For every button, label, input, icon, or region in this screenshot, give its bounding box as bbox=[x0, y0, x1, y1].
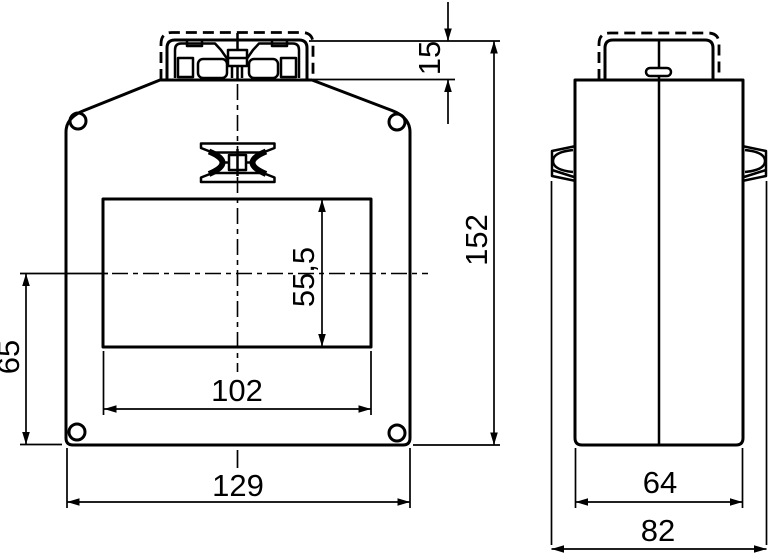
terminal-screw-small-right bbox=[281, 58, 296, 77]
arrowhead-left bbox=[576, 498, 589, 506]
arrowhead-left bbox=[104, 405, 117, 413]
arrowhead-right bbox=[398, 498, 411, 506]
dim-window-height: 55,5 bbox=[286, 200, 326, 347]
dimensions: 15 152 55,5 102 bbox=[0, 2, 767, 553]
dim-text-82: 82 bbox=[641, 513, 675, 548]
dim-text-129: 129 bbox=[212, 468, 264, 503]
mounting-hole-bottom-right bbox=[389, 425, 405, 441]
dim-text-64: 64 bbox=[643, 465, 677, 500]
dim-base-to-center: 65 bbox=[0, 274, 108, 445]
right-clip-spring-arc bbox=[745, 150, 765, 172]
arrowhead-up bbox=[444, 80, 452, 93]
cap-slot bbox=[646, 68, 671, 76]
arrowhead-up bbox=[490, 41, 498, 54]
dim-body-depth: 64 bbox=[576, 448, 743, 508]
dim-overall-width: 129 bbox=[67, 448, 410, 508]
dim-text-152: 152 bbox=[459, 214, 494, 266]
dim-text-102: 102 bbox=[211, 373, 263, 408]
arrowhead-right bbox=[730, 498, 743, 506]
arrowhead-down bbox=[22, 432, 30, 445]
mounting-hole-top-left bbox=[70, 113, 86, 129]
arrowhead-left bbox=[552, 545, 565, 553]
dim-text-65: 65 bbox=[0, 340, 26, 374]
dim-text-15: 15 bbox=[412, 41, 447, 75]
dim-overall-height: 152 bbox=[413, 41, 500, 445]
arrowhead-right bbox=[754, 545, 767, 553]
left-clip-spring-arc bbox=[553, 150, 573, 172]
arrowhead-down bbox=[490, 433, 498, 446]
dimension-drawing-canvas: 15 152 55,5 102 bbox=[0, 0, 770, 555]
bobbin-right-crescent bbox=[253, 152, 267, 175]
mounting-hole-bottom-left bbox=[69, 424, 85, 440]
dim-text-55-5: 55,5 bbox=[286, 247, 321, 307]
right-clip bbox=[742, 146, 766, 181]
terminal-screw-small-left bbox=[178, 58, 193, 77]
left-clip bbox=[552, 146, 576, 181]
arrowhead-down bbox=[318, 334, 326, 347]
drawing-sheet: 15 152 55,5 102 bbox=[0, 0, 770, 555]
bobbin-left-crescent bbox=[209, 152, 223, 175]
terminal-screw-right bbox=[249, 59, 278, 78]
terminal-screw-left bbox=[198, 59, 227, 78]
dim-window-width: 102 bbox=[104, 351, 372, 415]
dim-terminal-height: 15 bbox=[309, 2, 500, 124]
mounting-hole-top-right bbox=[389, 114, 405, 130]
side-view bbox=[552, 33, 766, 445]
arrowhead-up bbox=[22, 274, 30, 287]
arrowhead-up bbox=[318, 200, 326, 213]
arrowhead-down bbox=[444, 29, 452, 42]
arrowhead-left bbox=[67, 498, 80, 506]
arrowhead-right bbox=[359, 405, 372, 413]
